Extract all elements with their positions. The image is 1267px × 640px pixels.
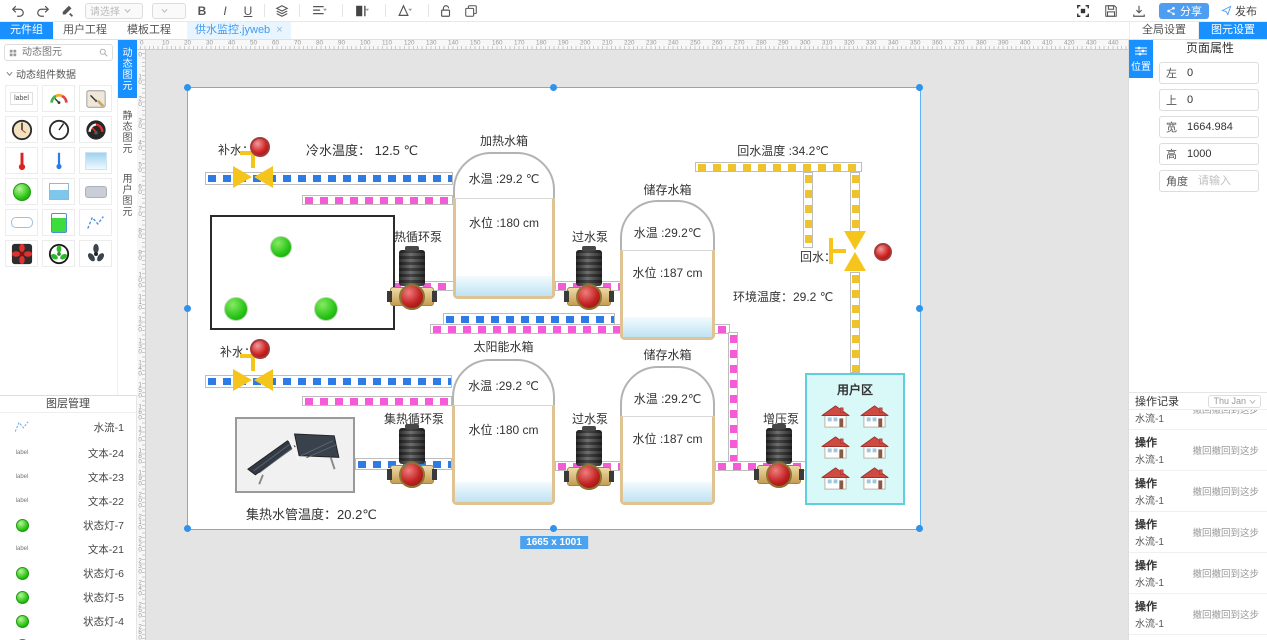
feed-water-label-top[interactable]: 补水： — [218, 141, 254, 158]
close-icon[interactable]: × — [276, 22, 282, 39]
search-icon — [99, 48, 108, 57]
property-field-1: 上 — [1159, 89, 1259, 111]
house-icon — [819, 465, 852, 492]
history-op: 操作 — [1135, 434, 1164, 450]
tank-temp-value: 水温 :29.2℃ — [622, 390, 713, 407]
layer-name: 状态灯-6 — [83, 566, 136, 581]
settings-tabs: 全局设置图元设置 — [1129, 22, 1267, 39]
property-input-0[interactable] — [1185, 66, 1252, 80]
property-label: 左 — [1166, 65, 1177, 81]
italic-button[interactable]: I — [218, 4, 232, 18]
layer-panel-title: 图层管理 — [0, 396, 136, 413]
layer-name: 状态灯-7 — [83, 518, 136, 533]
user-area[interactable]: 用户区 — [805, 373, 905, 505]
fan-red-icon — [11, 243, 33, 265]
return-valve[interactable] — [844, 231, 866, 271]
layer-name: 状态灯-4 — [83, 614, 136, 629]
light-icon — [0, 591, 44, 604]
layer-row[interactable]: label 文本-21 — [0, 537, 136, 561]
selection-handle[interactable] — [184, 525, 191, 532]
layer-name: 文本-22 — [88, 494, 136, 509]
layer-row[interactable]: 状态灯-5 — [0, 585, 136, 609]
history-undo-link[interactable]: 撤回撤回到这步 — [1192, 410, 1259, 416]
booster-pump[interactable] — [757, 426, 801, 484]
heating-tank-title[interactable]: 加热水箱 — [453, 132, 555, 149]
artboard-size-badge: 1665 x 1001 — [520, 536, 588, 549]
save-icon[interactable] — [1103, 3, 1119, 19]
palette-side-tab-2[interactable]: 用户图元 — [118, 166, 138, 224]
property-label: 宽 — [1166, 119, 1177, 135]
storage-tank-title-bottom[interactable]: 储存水箱 — [620, 346, 715, 363]
palette-item-propeller-dark[interactable] — [79, 240, 112, 267]
houses-grid — [807, 398, 903, 497]
design-canvas[interactable]: 0102030405060708090100110120130140150160… — [137, 40, 1128, 640]
user-area-title: 用户区 — [807, 381, 903, 398]
tank-temp-value: 水温 :29.2 ℃ — [454, 377, 553, 394]
palette-item-round-meter-tan[interactable] — [5, 116, 38, 143]
tank-temp-value: 水温 :29.2 ℃ — [455, 170, 553, 187]
status-light-red[interactable] — [874, 243, 892, 261]
heating-circ-pump[interactable] — [390, 248, 434, 306]
fullscreen-icon[interactable] — [1075, 3, 1091, 19]
selection-handle[interactable] — [916, 525, 923, 532]
history-undo-link[interactable]: 撤回撤回到这步 — [1192, 607, 1259, 621]
property-field-2: 宽 — [1159, 116, 1259, 138]
heating-tank[interactable]: 水温 :29.2 ℃ 水位 :180 cm — [453, 152, 555, 299]
property-input-4[interactable] — [1196, 174, 1252, 188]
round-meter-tan-icon — [11, 119, 33, 141]
share-icon — [1166, 6, 1176, 16]
bold-button[interactable]: B — [195, 4, 209, 18]
status-light-red[interactable] — [250, 137, 270, 157]
palette-side-tab-1[interactable]: 静态图元 — [118, 103, 138, 161]
gradient-panel-icon — [85, 152, 107, 170]
tank-level-value: 水位 :180 cm — [455, 214, 553, 231]
history-target: 水流-1 — [1135, 574, 1164, 589]
pipe-yellow[interactable] — [850, 272, 860, 373]
divider — [428, 4, 429, 17]
arc-gauge-icon — [48, 88, 70, 110]
valve[interactable] — [233, 369, 273, 391]
square-dial-icon — [85, 88, 107, 110]
download-icon[interactable] — [1131, 3, 1147, 19]
collector-circ-pump[interactable] — [390, 426, 434, 484]
tank-level-value: 水位 :187 cm — [622, 430, 713, 447]
label-icon: label — [0, 474, 44, 480]
history-row[interactable]: 操作 水流-1 撤回撤回到这步 — [1129, 594, 1267, 635]
share-button[interactable]: 分享 — [1159, 3, 1209, 19]
history-row[interactable]: 操作 水流-1 撤回撤回到这步 — [1129, 471, 1267, 512]
solar-tank[interactable]: 水温 :29.2 ℃ 水位 :180 cm — [452, 359, 555, 505]
light-icon — [0, 519, 44, 532]
nav-tab-1[interactable]: 用户工程 — [53, 22, 117, 39]
page-artboard[interactable]: 补水： 冷水温度： 12.5 ℃ 加热水箱 水温 :29.2 ℃ 水位 :180… — [188, 88, 920, 529]
properties-panel: 位置 页面属性 左 上 宽 高 角度 操作记录 Thu Jan — [1128, 40, 1267, 640]
status-light-green[interactable] — [270, 236, 292, 258]
property-label: 高 — [1166, 146, 1177, 162]
divider — [385, 4, 386, 17]
search-input[interactable] — [20, 46, 96, 59]
solar-tank-title[interactable]: 太阳能水箱 — [452, 338, 555, 355]
underline-button[interactable]: U — [241, 4, 255, 18]
palette-grid: label — [0, 83, 117, 269]
position-tab-label: 位置 — [1131, 58, 1151, 73]
light-icon — [0, 567, 44, 580]
layer-name: 水流-1 — [94, 420, 136, 435]
scada-editor-window: 请选择 B I U 分享 发布 元件组用户 — [0, 0, 1267, 640]
pipe-yellow[interactable] — [695, 162, 862, 172]
history-op: 操作 — [1135, 557, 1164, 573]
label-icon: label — [0, 498, 44, 504]
label-icon: label — [0, 546, 44, 552]
layer-panel: 图层管理 水流-1 label 文本-24 label 文本-23 label … — [0, 395, 137, 640]
chevron-down-icon — [1249, 398, 1256, 405]
tank-water — [455, 482, 552, 502]
property-input-2[interactable] — [1185, 120, 1252, 134]
layer-row[interactable]: 状态灯-4 — [0, 609, 136, 633]
layer-name: 文本-23 — [88, 470, 136, 485]
selection-handle[interactable] — [184, 305, 191, 312]
storage-tank-top[interactable]: 水温 :29.2℃ 水位 :187 cm — [620, 200, 715, 340]
history-undo-link[interactable]: 撤回撤回到这步 — [1192, 443, 1259, 457]
vertical-ruler: 0102030405060708090100110120130140150160… — [137, 50, 146, 640]
document-tab[interactable]: 供水监控.jyweb × — [187, 22, 291, 39]
history-target: 水流-1 — [1135, 410, 1164, 425]
property-input-1[interactable] — [1185, 93, 1252, 107]
storage-tank-bottom[interactable]: 水温 :29.2℃ 水位 :187 cm — [620, 366, 715, 505]
selection-handle[interactable] — [916, 305, 923, 312]
thermometer-blue-icon — [48, 150, 70, 172]
history-undo-link[interactable]: 撤回撤回到这步 — [1192, 484, 1259, 498]
palette-item-fan-red[interactable] — [5, 240, 38, 267]
round-meter-white-icon — [48, 119, 70, 141]
divider — [342, 4, 343, 17]
font-select[interactable]: 请选择 — [85, 3, 143, 19]
send-icon — [1221, 5, 1232, 16]
align-left-icon[interactable] — [309, 3, 333, 19]
history-op: 操作 — [1135, 516, 1164, 532]
fill-tank-green-icon — [51, 213, 67, 233]
component-palette: 动态组件数据 label — [0, 40, 117, 395]
flow-line-icon — [85, 212, 107, 234]
propeller-dark-icon — [85, 243, 107, 265]
palette-item-gradient-panel[interactable] — [79, 147, 112, 174]
house-icon — [858, 434, 891, 461]
format-painter-icon[interactable] — [60, 3, 76, 19]
house-icon — [858, 465, 891, 492]
palette-item-arc-gauge[interactable] — [42, 85, 75, 112]
pass-pump-bottom[interactable] — [567, 428, 611, 486]
pass-pump-top[interactable] — [567, 248, 611, 306]
position-tab[interactable]: 位置 — [1129, 40, 1153, 78]
house-icon — [858, 403, 891, 430]
chevron-down-icon — [6, 70, 13, 77]
top-toolbar: 请选择 B I U 分享 发布 — [0, 0, 1267, 22]
palette-item-speedometer[interactable] — [79, 116, 112, 143]
history-target: 水流-1 — [1135, 533, 1164, 548]
palette-side-tab-0[interactable]: 动态图元 — [118, 40, 138, 98]
tank-temp-value: 水温 :29.2℃ — [622, 224, 713, 241]
layer-name: 文本-21 — [88, 542, 136, 557]
history-header: 操作记录 Thu Jan — [1129, 393, 1267, 410]
light-icon — [0, 615, 44, 628]
nav-tab-0[interactable]: 元件组 — [0, 22, 53, 39]
status-light-box[interactable] — [210, 215, 395, 330]
solar-panel-image — [239, 422, 351, 488]
palette-item-label-text[interactable]: label — [5, 85, 38, 112]
layer-row[interactable] — [0, 633, 136, 640]
palette-item-outline-rounded-rect[interactable] — [5, 209, 38, 236]
house-icon — [819, 434, 852, 461]
palette-item-fill-tank-green[interactable] — [42, 209, 75, 236]
label-text-icon: label — [10, 92, 33, 105]
page-properties-title: 页面属性 — [1153, 40, 1267, 56]
status-light-red[interactable] — [250, 339, 270, 359]
history-row[interactable]: 操作 水流-1 撤回撤回到这步 — [1129, 430, 1267, 471]
history-undo-link[interactable]: 撤回撤回到这步 — [1192, 525, 1259, 539]
layer-row[interactable]: 状态灯-7 — [0, 513, 136, 537]
layer-row[interactable]: label 文本-24 — [0, 441, 136, 465]
selection-handle[interactable] — [550, 84, 557, 91]
layers-icon[interactable] — [274, 3, 290, 19]
history-op: 操作 — [1135, 475, 1164, 491]
label-icon: label — [0, 450, 44, 456]
unlock-icon[interactable] — [438, 3, 454, 19]
palette-section-title: 动态组件数据 — [16, 66, 76, 81]
layer-name: 状态灯-5 — [83, 590, 136, 605]
solar-collector[interactable] — [235, 417, 355, 493]
pass-pump-label-top[interactable]: 过水泵 — [554, 228, 626, 245]
palette-side-tabs: 动态图元静态图元用户图元 — [117, 40, 137, 395]
history-row[interactable]: 操作 水流-1 撤回撤回到这步 — [1129, 512, 1267, 553]
property-label: 上 — [1166, 92, 1177, 108]
pipe-yellow[interactable] — [803, 172, 813, 248]
property-fields: 左 上 宽 高 角度 — [1159, 62, 1259, 197]
palette-item-gray-rounded-rect[interactable] — [79, 178, 112, 205]
horizontal-ruler: 0102030405060708090100110120130140150160… — [137, 40, 1128, 50]
status-light-green[interactable] — [224, 297, 248, 321]
layer-row[interactable]: label 文本-22 — [0, 489, 136, 513]
tank-water — [456, 276, 552, 296]
fan-green-icon — [48, 243, 70, 265]
toolbar-right: 分享 发布 — [1075, 3, 1257, 19]
flip-shape-icon[interactable] — [395, 3, 419, 19]
document-tab-label: 供水监控.jyweb — [195, 22, 270, 39]
palette-item-square-dial[interactable] — [79, 85, 112, 112]
history-list: 操作 水流-1 撤回撤回到这步 操作 水流-1 撤回撤回到这步 操作 水流-1 … — [1129, 410, 1267, 639]
redo-icon[interactable] — [35, 3, 51, 19]
selection-handle[interactable] — [184, 84, 191, 91]
palette-section-header[interactable]: 动态组件数据 — [0, 64, 117, 83]
layer-row[interactable]: 水流-1 — [0, 413, 136, 441]
palette-item-round-meter-white[interactable] — [42, 116, 75, 143]
flow-icon — [0, 419, 44, 435]
house-icon — [819, 403, 852, 430]
layer-list: 水流-1 label 文本-24 label 文本-23 label 文本-22… — [0, 413, 136, 640]
publish-button[interactable]: 发布 — [1221, 3, 1257, 19]
property-label: 角度 — [1166, 173, 1188, 189]
palette-item-status-light-green[interactable] — [5, 178, 38, 205]
layer-name: 文本-24 — [88, 446, 136, 461]
property-field-0: 左 — [1159, 62, 1259, 84]
history-target: 水流-1 — [1135, 451, 1164, 466]
history-row[interactable]: 操作 水流-1 撤回撤回到这步 — [1129, 635, 1267, 639]
history-title: 操作记录 — [1135, 393, 1179, 409]
settings-tab-1[interactable]: 图元设置 — [1198, 22, 1267, 39]
selection-handle[interactable] — [916, 84, 923, 91]
pipe-pink[interactable] — [302, 195, 453, 205]
outline-rounded-rect-icon — [11, 217, 33, 228]
tab-row: 元件组用户工程模板工程 供水监控.jyweb × 全局设置图元设置 — [0, 22, 1267, 40]
tank-water — [623, 317, 712, 337]
cold-water-temp-label[interactable]: 冷水温度： 12.5 ℃ — [306, 140, 418, 159]
history-row[interactable]: 操作 水流-1 撤回撤回到这步 — [1129, 553, 1267, 594]
layer-row[interactable]: label 文本-23 — [0, 465, 136, 489]
valve[interactable] — [233, 166, 273, 188]
level-gauge-icon — [49, 183, 69, 200]
nav-tab-2[interactable]: 模板工程 — [117, 22, 181, 39]
history-date-filter[interactable]: Thu Jan — [1208, 395, 1261, 408]
settings-tab-0[interactable]: 全局设置 — [1129, 22, 1198, 39]
speedometer-icon — [85, 119, 107, 141]
nav-tabs: 元件组用户工程模板工程 — [0, 22, 181, 39]
status-light-green[interactable] — [314, 297, 338, 321]
layer-row[interactable]: 状态灯-6 — [0, 561, 136, 585]
pipe-pink[interactable] — [728, 332, 738, 468]
property-input-3[interactable] — [1185, 147, 1252, 161]
copy-icon[interactable] — [463, 3, 479, 19]
tank-level-value: 水位 :187 cm — [622, 264, 713, 281]
return-temp-label[interactable]: 回水温度 :34.2℃ — [698, 142, 868, 159]
history-undo-link[interactable]: 撤回撤回到这步 — [1192, 566, 1259, 580]
gray-rounded-rect-icon — [85, 186, 107, 198]
history-panel: 操作记录 Thu Jan 操作 水流-1 撤回撤回到这步 操作 水流-1 撤回撤… — [1129, 392, 1267, 640]
thermometer-red-icon — [11, 150, 33, 172]
palette-item-thermometer-blue[interactable] — [42, 147, 75, 174]
palette-item-level-gauge[interactable] — [42, 178, 75, 205]
pass-pump-label-bottom[interactable]: 过水泵 — [554, 410, 626, 427]
palette-item-thermometer-red[interactable] — [5, 147, 38, 174]
history-target: 水流-1 — [1135, 492, 1164, 507]
selection-handle[interactable] — [550, 525, 557, 532]
collector-temp-label[interactable]: 集热水管温度：20.2℃ — [246, 504, 377, 523]
palette-item-fan-green[interactable] — [42, 240, 75, 267]
storage-tank-title-top[interactable]: 储存水箱 — [620, 181, 715, 198]
history-row[interactable]: 操作 水流-1 撤回撤回到这步 — [1129, 410, 1267, 430]
pipe-pink[interactable] — [302, 396, 452, 406]
palette-item-flow-line[interactable] — [79, 209, 112, 236]
palette-search — [4, 44, 113, 61]
property-field-3: 高 — [1159, 143, 1259, 165]
tank-water — [623, 482, 712, 502]
tank-level-value: 水位 :180 cm — [454, 421, 553, 438]
sliders-icon — [1135, 46, 1147, 56]
history-op: 操作 — [1135, 598, 1164, 614]
undo-icon[interactable] — [10, 3, 26, 19]
grid-icon — [9, 49, 17, 57]
distribute-icon[interactable] — [352, 3, 376, 19]
divider — [264, 4, 265, 17]
history-target: 水流-1 — [1135, 615, 1164, 630]
divider — [299, 4, 300, 17]
property-field-4: 角度 — [1159, 170, 1259, 192]
status-light-green-icon — [13, 183, 31, 201]
size-select[interactable] — [152, 3, 186, 19]
pipe-yellow[interactable] — [850, 172, 860, 238]
ambient-temp-label[interactable]: 环境温度：29.2 ℃ — [733, 288, 833, 305]
